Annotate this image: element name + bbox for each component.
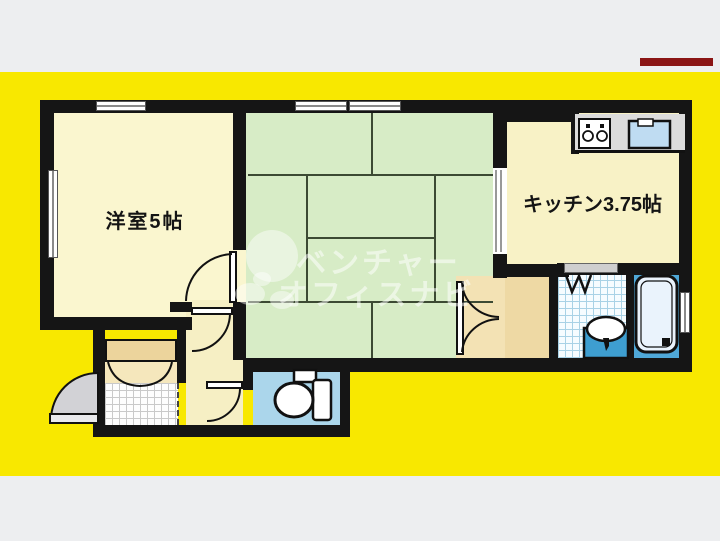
wall-west-tatami-upper [233, 112, 246, 252]
room-label-kitchen: キッチン3.75帖 [500, 188, 685, 217]
wall-kitchen-top-stub [493, 112, 577, 122]
toilet-floor [253, 370, 340, 425]
wall-genkan-right [177, 330, 186, 383]
window-western-left [48, 170, 58, 258]
room-label-western: 洋室5帖 [60, 205, 230, 234]
closet-interior [505, 276, 549, 358]
wall-west-bottom [40, 317, 192, 330]
wall-west-tatami-lower [233, 300, 246, 360]
wall-hall-top-stub [170, 302, 192, 312]
red-artifact-mark [640, 58, 713, 66]
bathroom-floor [634, 273, 679, 362]
entrance-genkan-floor [105, 383, 178, 425]
wall-wash-bath-divider [626, 271, 634, 362]
window-tatami-top-left [295, 101, 347, 111]
door-leaf-western [229, 251, 237, 303]
wall-genkan-left [93, 328, 105, 437]
washroom-door-lintel [564, 263, 618, 273]
shoe-cabinet [105, 339, 177, 362]
wall-protrusion-bottom [93, 425, 350, 437]
door-leaf-toilet [206, 381, 243, 389]
watermark-line2: オフィスナビ [278, 270, 475, 314]
door-leaf-hallway [191, 307, 233, 315]
window-tatami-top-right [349, 101, 401, 111]
washroom-floor [558, 273, 626, 358]
genkan-step-line [177, 383, 179, 425]
kitchen-sliding-track [495, 170, 497, 252]
wall-closet-wash-divider [549, 271, 558, 362]
kitchen-counter [575, 114, 685, 153]
tatami-line [371, 112, 373, 175]
entrance-upper-floor [105, 362, 177, 383]
floorplan-screenshot: 洋室5帖 キッチン3.75帖 ベンチャー オフィスナビ [0, 0, 720, 541]
window-bath-right [680, 292, 690, 333]
window-western-top [96, 101, 146, 111]
